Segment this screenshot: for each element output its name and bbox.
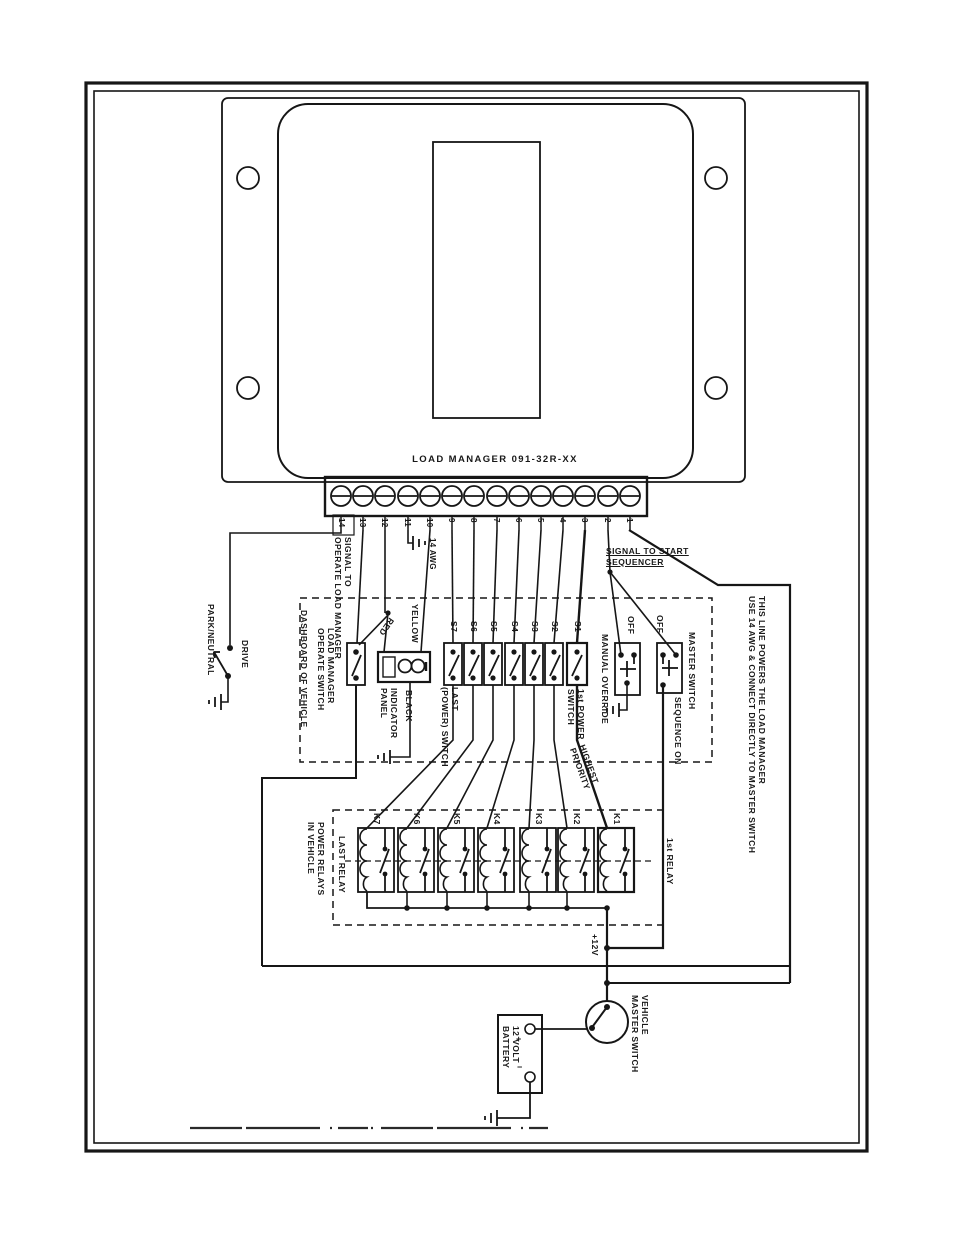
switch-id-s4: S4: [510, 621, 520, 632]
terminal-number: 13: [358, 518, 366, 528]
relay-id-k5: K5: [452, 813, 462, 825]
park-neutral-label: PARK/NEUTRAL: [206, 604, 216, 676]
terminal-strip: [325, 477, 647, 535]
screw-terminals: [331, 486, 640, 506]
mounting-hole: [237, 167, 259, 189]
ground-terminal11: [413, 536, 425, 550]
relay-id-k1: K1: [612, 813, 622, 825]
terminal-number: 12: [380, 518, 388, 528]
battery-plus-terminal: [525, 1024, 535, 1034]
relay-id-k4: K4: [492, 813, 502, 825]
last-switch-label: LAST (POWER) SWITCH: [440, 687, 460, 767]
manual-override-off-label: OFF: [626, 616, 636, 634]
relay-k7: [358, 828, 394, 892]
terminal-number: 11: [403, 518, 411, 527]
relay-bank: [358, 828, 634, 892]
relay-id-k2: K2: [572, 813, 582, 825]
terminal-number: 1: [625, 518, 633, 523]
mounting-hole: [237, 377, 259, 399]
power-line-note: THIS LINE POWERS THE LOAD MANAGER USE 14…: [747, 596, 767, 853]
operate-switch-label: LOAD MANAGER OPERATE SWITCH: [316, 628, 336, 711]
indicator-light: [412, 660, 425, 673]
relay-k1: [598, 828, 634, 892]
relay-id-k3: K3: [534, 813, 544, 825]
relay-id-k7: K7: [372, 813, 382, 825]
sequence-on-label: SEQUENCE ON: [673, 697, 683, 765]
terminal-number: 3: [580, 518, 588, 523]
relay-k6: [398, 828, 434, 892]
signal-to-start-label: SIGNAL TO START SEQUENCER: [606, 546, 689, 567]
switch-id-s2: S2: [550, 621, 560, 632]
battery-minus-sign: −: [517, 1062, 523, 1073]
master-switch-off-label: OFF: [655, 615, 665, 633]
vehicle-master-switch-label: VEHICLE MASTER SWITCH: [630, 995, 650, 1073]
terminal-number: 8: [469, 518, 477, 523]
first-switch-label: 1st POWER SWITCH: [566, 689, 586, 740]
master-switch-label: MASTER SWITCH: [687, 632, 697, 710]
switch-id-s6: S6: [469, 621, 479, 632]
relay-k3: [520, 828, 556, 892]
terminal-number: 7: [492, 518, 500, 523]
black-wire-label: BLACK: [404, 690, 414, 722]
last-relay-label: LAST RELAY: [337, 836, 347, 893]
mounting-hole: [705, 377, 727, 399]
battery-plus-sign: +: [516, 1034, 522, 1045]
plus-12v-label: +12V: [590, 934, 600, 956]
terminal-number: 9: [447, 518, 455, 523]
switch-id-s3: S3: [530, 621, 540, 632]
park-neutral-switch: [214, 652, 228, 676]
terminal-number: 5: [536, 518, 544, 523]
yellow-wire-label: YELLOW: [410, 604, 420, 643]
manual-override-label: MANUAL OVERRIDE: [600, 634, 610, 724]
unit-title: LOAD MANAGER 091-32R-XX: [400, 454, 590, 465]
load-manager-unit: [222, 98, 745, 482]
terminal-number: 14: [337, 518, 345, 528]
relay-k2: [558, 828, 594, 892]
schematic-drawing: [0, 0, 954, 1235]
power-relays-label: POWER RELAYS IN VEHICLE: [306, 822, 326, 896]
relay-k5: [438, 828, 474, 892]
terminal-number: 2: [603, 518, 611, 523]
relay-k4: [478, 828, 514, 892]
switch-id-s7: S7: [449, 621, 459, 632]
indicator-light: [399, 660, 412, 673]
first-relay-label: 1st RELAY: [665, 838, 675, 885]
wiring-diagram-page: LOAD MANAGER 091-32R-XX 14 13 12 11 10 9…: [0, 0, 954, 1235]
ground-park: [209, 694, 221, 710]
wire-gauge-note: 14 AWG: [428, 538, 436, 570]
switch-id-s5: S5: [489, 621, 499, 632]
terminal-number: 10: [425, 518, 433, 528]
relay-id-k6: K6: [412, 813, 422, 825]
terminal-number: 6: [514, 518, 522, 523]
indicator-panel-label: INDICATOR PANEL: [379, 688, 399, 739]
unit-window: [433, 142, 540, 418]
ground-battery: [485, 1110, 497, 1126]
indicator-panel: [378, 652, 430, 682]
switch-id-s1: S1: [573, 621, 583, 632]
mounting-hole: [705, 167, 727, 189]
battery-minus-terminal: [525, 1072, 535, 1082]
junction-dots: [225, 569, 679, 1031]
dashboard-label: DASHBOARD OF VEHICLE: [299, 610, 309, 728]
terminal-number: 4: [558, 518, 566, 523]
drive-label: DRIVE: [240, 640, 250, 668]
